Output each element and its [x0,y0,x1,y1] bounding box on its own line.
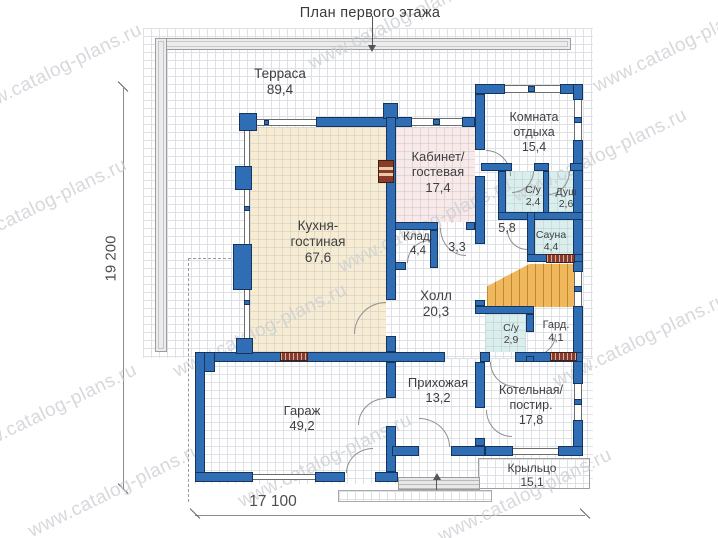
wall-segment [475,362,485,408]
fireplace-icon [378,160,394,183]
dimension-label-vertical: 19 200 [103,224,120,294]
window-mullion [574,286,582,292]
window-mullion [433,119,440,125]
window-mullion [244,206,250,211]
room-label-terrace: Терраса89,4 [240,66,320,98]
watermark: www.catalog-plans.ru [590,0,718,98]
glazed-wall [244,131,250,352]
room-label-kitchen-living: Кухня-гостиная67,6 [276,218,360,266]
radiator-icon [546,254,575,263]
radiator-icon [280,352,308,361]
room-label-storage: Клад.4,4 [398,231,438,258]
wall-segment [451,446,485,456]
room-label-wc-24: С/у2,4 [516,184,550,209]
wall-segment [475,438,485,446]
room-label-corridor-33: 3,3 [440,240,474,255]
dimension-line-vertical [123,88,124,490]
wall-segment [570,163,583,171]
wall-segment [573,84,583,100]
wall-segment [480,352,490,362]
dimension-tick [190,508,201,519]
wall-segment [475,306,534,314]
wall-segment [386,362,396,398]
window-mullion [244,300,250,305]
watermark: www.catalog-plans.ru [25,439,206,538]
window-mullion [574,117,582,123]
wall-segment [195,472,253,482]
porch-step-strip [338,490,492,502]
wall-segment [466,222,475,230]
room-label-sauna: Сауна4,4 [532,229,570,254]
wall-segment [475,84,505,94]
wall-segment [392,446,419,456]
window-post [233,244,252,290]
wall-corner-post [239,113,257,131]
dimension-line-horizontal [195,515,585,516]
window-post [235,166,252,190]
steps-arrow-head [433,473,441,480]
wall-segment [386,336,396,352]
wall-segment [534,163,549,171]
room-label-wardrobe: Гард.4,1 [536,319,576,345]
wall-segment [315,472,345,482]
room-label-corridor-58: 5,8 [492,221,522,236]
page-title: План первого этажа [250,5,490,21]
wall-segment [481,163,512,171]
room-label-hall: Холл20,3 [406,288,466,320]
room-label-shower: Душ2,6 [548,186,584,211]
wall-segment [485,446,513,456]
wall-segment [475,94,485,150]
wall-segment [558,446,583,456]
room-label-wc-29: С/у2,9 [494,322,528,347]
wall-segment [498,212,583,220]
window-mullion [264,120,269,125]
floor-plan: План первого этажа www.catalog-plans.ru … [0,0,718,538]
room-label-garage: Гараж49,2 [268,403,336,434]
wall-segment [375,472,398,482]
wall-segment [526,356,534,362]
section-arrow-head [368,45,376,52]
room-label-cabinet-guest: Кабинет/гостевая17,4 [398,149,478,195]
dimension-label-horizontal: 17 100 [238,493,308,511]
room-label-porch: Крыльцо15,1 [496,461,568,489]
dimension-tick [580,508,591,519]
window [513,448,558,455]
garage-door-opening [253,474,315,480]
room-label-rest-room: Комнатаотдыха15,4 [494,110,574,154]
room-label-boiler-laundry: Котельная/постир.17,8 [486,383,576,427]
watermark: www.catalog-plans.ru [0,359,141,462]
wall-segment [195,352,205,482]
wall-segment [386,117,396,300]
wall-segment [392,222,438,230]
wall-segment [573,306,583,384]
window-mullion [528,86,535,92]
window-post [236,338,253,354]
wall-segment [195,352,445,362]
overhang-dashed-line [188,258,190,502]
wall-segment [462,117,475,127]
room-label-hallway: Прихожая13,2 [400,375,476,406]
terrace-edge-left [155,38,167,352]
radiator-icon [550,352,577,361]
